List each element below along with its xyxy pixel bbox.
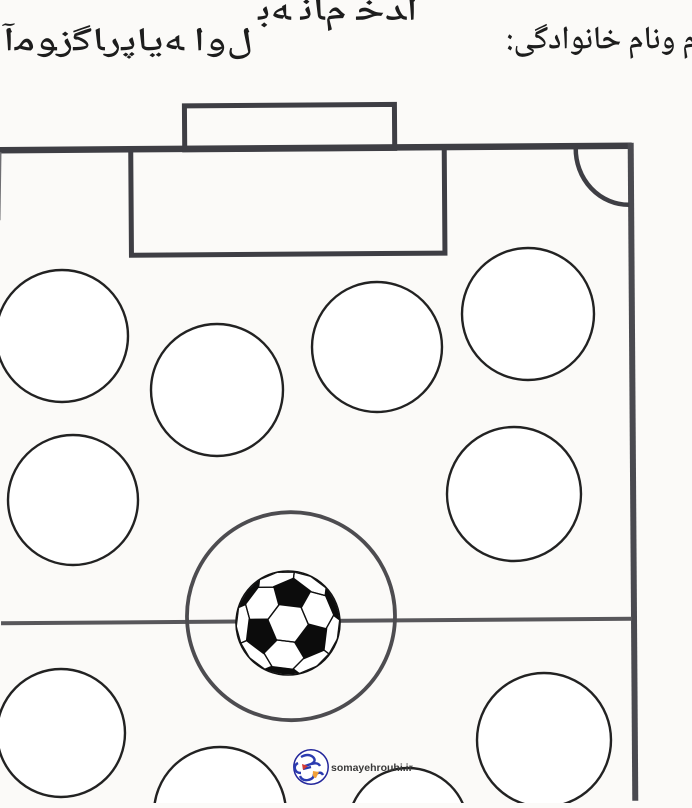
svg-text:somayehrouhi.ir: somayehrouhi.ir	[331, 762, 413, 774]
